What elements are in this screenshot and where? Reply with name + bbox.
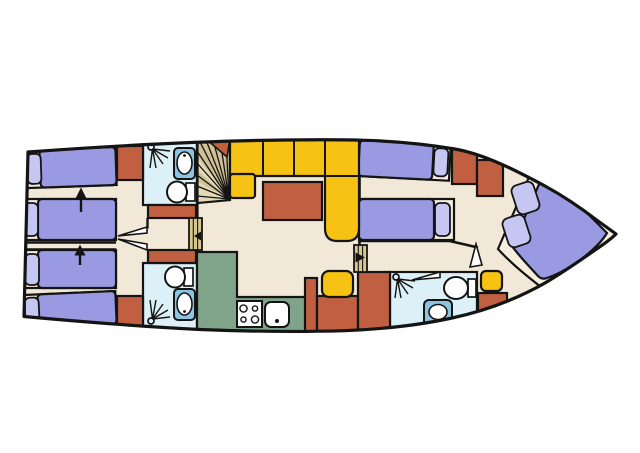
stove-burner-icon: [251, 316, 258, 323]
bed-pillow: [435, 203, 450, 236]
toilet-icon: [165, 267, 185, 288]
galley-sink-icon: [265, 302, 289, 327]
bed-mattress: [38, 250, 116, 288]
galley-counter-rust-block: [317, 296, 358, 334]
galley-sink-drain: [275, 319, 279, 323]
saloon-stool: [322, 271, 353, 297]
cabinet-corridor-starboard: [358, 272, 390, 334]
bed-pillow: [433, 148, 448, 177]
stove-burner-icon: [252, 306, 257, 311]
interior-layer: [20, 136, 640, 334]
bed-pillow: [25, 254, 39, 285]
wardrobe-bow-b: [477, 160, 503, 196]
toilet-icon: [444, 277, 468, 299]
sofa-corner-seat: [230, 174, 255, 198]
bed-mattress: [38, 199, 116, 240]
cabinet-vestibule-upper: [148, 205, 196, 218]
bed-pillow: [24, 297, 39, 325]
stove-burner-icon: [240, 305, 247, 312]
stove-burner-icon: [241, 317, 246, 322]
sink-icon-tap: [183, 310, 186, 313]
cabinet-vestibule-lower: [148, 250, 196, 263]
sink-icon-basin: [429, 305, 447, 320]
bow-stool: [481, 271, 502, 291]
wardrobe-aft-upper: [117, 146, 143, 180]
toilet-icon-tank: [468, 279, 476, 297]
toilet-icon: [167, 182, 187, 203]
sink-icon-tap: [183, 154, 186, 157]
floor-plan-svg: [0, 0, 640, 453]
bed-mattress: [359, 199, 434, 240]
saloon-table: [263, 182, 322, 220]
boat-floor-plan-page: [0, 0, 640, 453]
galley-counter-rust-strip: [305, 278, 317, 334]
stove-icon: [237, 301, 262, 327]
bed-mattress: [39, 147, 116, 188]
